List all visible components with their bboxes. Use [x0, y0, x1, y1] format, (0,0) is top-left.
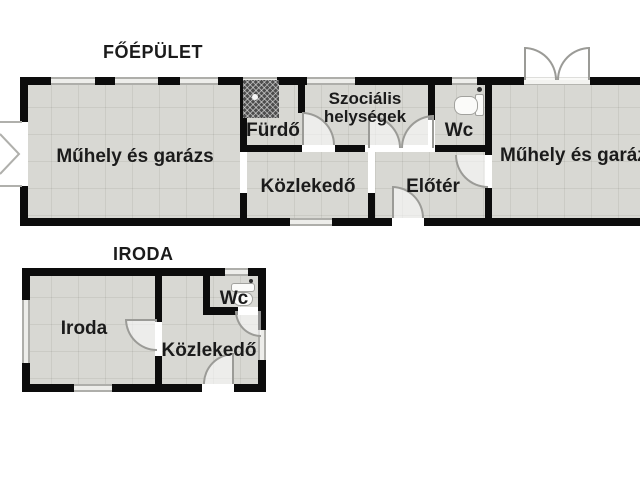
- door-opening-corridor-left: [240, 152, 247, 193]
- door-opening-social-left: [302, 145, 335, 152]
- window: [225, 268, 248, 276]
- room-label-social-rooms: Szociális helységek: [309, 90, 421, 126]
- window: [51, 77, 95, 85]
- wall-office-corridor-upper: [155, 276, 162, 322]
- main-building-title: FŐÉPÜLET: [103, 42, 203, 63]
- toilet-icon: [454, 86, 485, 116]
- room-label-foyer: Előtér: [406, 176, 460, 198]
- window: [115, 77, 158, 85]
- room-label-bathroom: Fürdő: [246, 120, 300, 142]
- shower-drain-icon: [252, 94, 258, 100]
- window: [307, 77, 355, 85]
- french-door-right-arc: [557, 47, 590, 80]
- wall-corridor-foyer: [368, 193, 375, 218]
- french-door-left-arc: [524, 47, 557, 80]
- room-label-office: Iroda: [61, 318, 107, 340]
- room-label-workshop-garage-right: Műhely és garázs: [500, 145, 640, 167]
- window: [452, 77, 477, 85]
- wall-bathroom-social: [298, 85, 305, 113]
- door-opening-corridor-foyer: [368, 152, 375, 193]
- floorplan: FŐÉPÜLET Műhely é: [0, 0, 640, 480]
- door-opening-foyer-entry: [392, 218, 424, 226]
- window: [180, 77, 218, 85]
- door-opening-office-entry: [202, 384, 234, 392]
- window: [290, 218, 332, 226]
- window: [22, 300, 30, 363]
- room-label-corridor-office: Közlekedő: [161, 340, 256, 362]
- room-label-wc-office: Wc: [220, 288, 249, 310]
- garage-door-icon: [0, 120, 22, 188]
- room-label-workshop-garage-left: Műhely és garázs: [56, 146, 213, 168]
- window: [74, 384, 112, 392]
- room-label-corridor-main: Közlekedő: [260, 176, 355, 198]
- shower-icon: [243, 80, 279, 118]
- office-building-title: IRODA: [113, 244, 174, 265]
- room-label-wc-main: Wc: [445, 120, 474, 142]
